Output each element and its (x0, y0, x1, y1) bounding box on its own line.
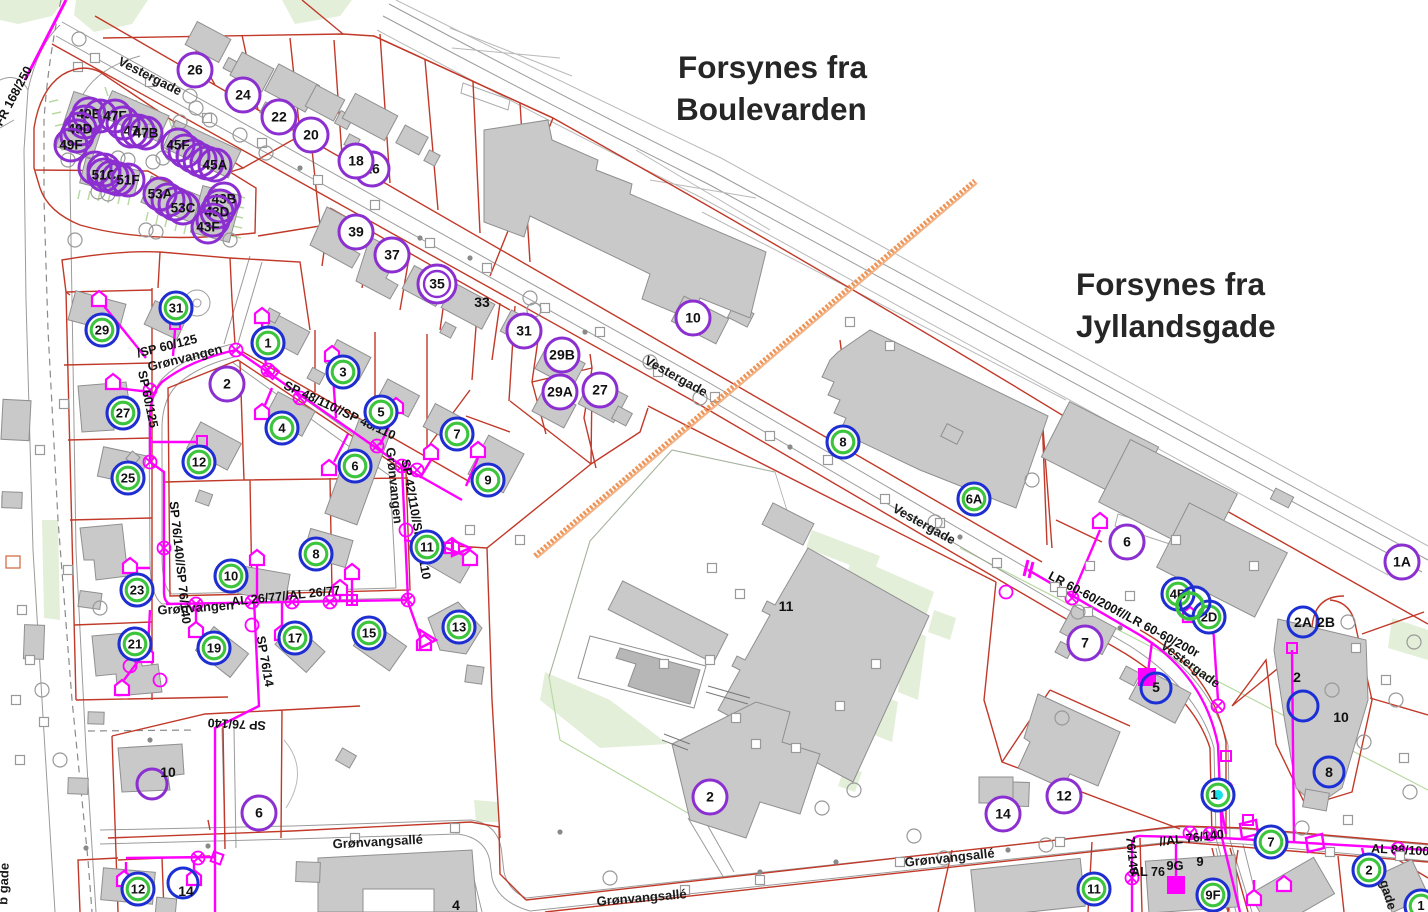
svg-text:12: 12 (192, 455, 206, 470)
svg-text:37: 37 (384, 247, 400, 263)
svg-text:31: 31 (516, 323, 532, 339)
svg-text:10: 10 (160, 764, 176, 780)
svg-text:26: 26 (187, 62, 203, 78)
svg-text:18: 18 (348, 153, 364, 169)
svg-text:17: 17 (288, 631, 302, 646)
svg-text:33: 33 (474, 294, 490, 310)
svg-text:14: 14 (178, 883, 194, 899)
svg-text:12: 12 (1056, 788, 1072, 804)
svg-text:1: 1 (1417, 898, 1424, 912)
svg-text:9: 9 (1196, 854, 1203, 869)
svg-text:8: 8 (1325, 764, 1333, 780)
svg-text:6: 6 (255, 805, 263, 821)
svg-text:9F: 9F (1205, 888, 1220, 903)
svg-text:2: 2 (1293, 669, 1301, 685)
svg-text:29B: 29B (549, 347, 575, 363)
svg-text:43F: 43F (196, 220, 219, 235)
svg-text:35: 35 (429, 276, 445, 292)
svg-text:14: 14 (995, 806, 1011, 822)
svg-text:20: 20 (303, 127, 319, 143)
svg-text:9: 9 (484, 473, 491, 488)
svg-text:27: 27 (592, 382, 608, 398)
svg-text:4: 4 (452, 897, 460, 912)
svg-text:31: 31 (169, 301, 183, 316)
svg-text:8: 8 (312, 547, 319, 562)
svg-text:b gade: b gade (0, 863, 12, 905)
svg-text:39: 39 (348, 224, 364, 240)
svg-text:Forsynes fra: Forsynes fra (1076, 266, 1266, 302)
svg-text:45F: 45F (166, 138, 189, 153)
svg-text:47B: 47B (134, 126, 159, 141)
svg-text:25: 25 (121, 471, 135, 486)
svg-text:29: 29 (95, 323, 109, 338)
svg-text:24: 24 (235, 87, 251, 103)
svg-text:7: 7 (1267, 835, 1274, 850)
svg-text:3: 3 (339, 365, 346, 380)
svg-text:8: 8 (839, 435, 846, 450)
svg-text:2A: 2A (1294, 614, 1312, 630)
svg-text:5: 5 (1152, 679, 1160, 695)
svg-text:6: 6 (351, 459, 358, 474)
svg-text:12: 12 (131, 882, 145, 897)
svg-text:6A: 6A (966, 492, 983, 507)
svg-text:22: 22 (271, 109, 287, 125)
svg-text:27: 27 (116, 406, 130, 421)
svg-text:2: 2 (706, 789, 714, 805)
svg-text:7: 7 (453, 427, 460, 442)
svg-text:2: 2 (1365, 863, 1372, 878)
svg-text:Forsynes fra: Forsynes fra (678, 49, 868, 85)
svg-text:1: 1 (264, 336, 271, 351)
svg-text:4: 4 (278, 421, 286, 436)
svg-text:45A: 45A (203, 158, 228, 173)
svg-text:2: 2 (223, 376, 231, 392)
svg-text:51F: 51F (116, 173, 139, 188)
svg-text:53C: 53C (171, 201, 196, 216)
svg-text:2B: 2B (1317, 614, 1335, 630)
svg-text:10: 10 (685, 310, 701, 326)
svg-text:29A: 29A (547, 384, 573, 400)
svg-text:19: 19 (207, 641, 221, 656)
svg-text:1: 1 (1210, 787, 1217, 802)
svg-text:Boulevarden: Boulevarden (676, 91, 867, 127)
svg-text:5: 5 (377, 405, 384, 420)
svg-text:1A: 1A (1393, 554, 1411, 570)
svg-text:9G: 9G (1166, 858, 1183, 873)
svg-text:11: 11 (1087, 882, 1101, 897)
svg-text:10: 10 (224, 569, 238, 584)
svg-text:11: 11 (420, 540, 434, 555)
svg-text:23: 23 (130, 583, 144, 598)
svg-text:6: 6 (1123, 534, 1131, 550)
svg-text:Jyllandsgade: Jyllandsgade (1076, 308, 1276, 344)
svg-text:13: 13 (452, 620, 466, 635)
svg-text:21: 21 (128, 637, 142, 652)
svg-text:11: 11 (779, 598, 794, 614)
svg-text:15: 15 (362, 626, 376, 641)
svg-text:7: 7 (1081, 635, 1089, 651)
svg-text:49F: 49F (59, 138, 82, 153)
svg-text:10: 10 (1333, 709, 1349, 725)
